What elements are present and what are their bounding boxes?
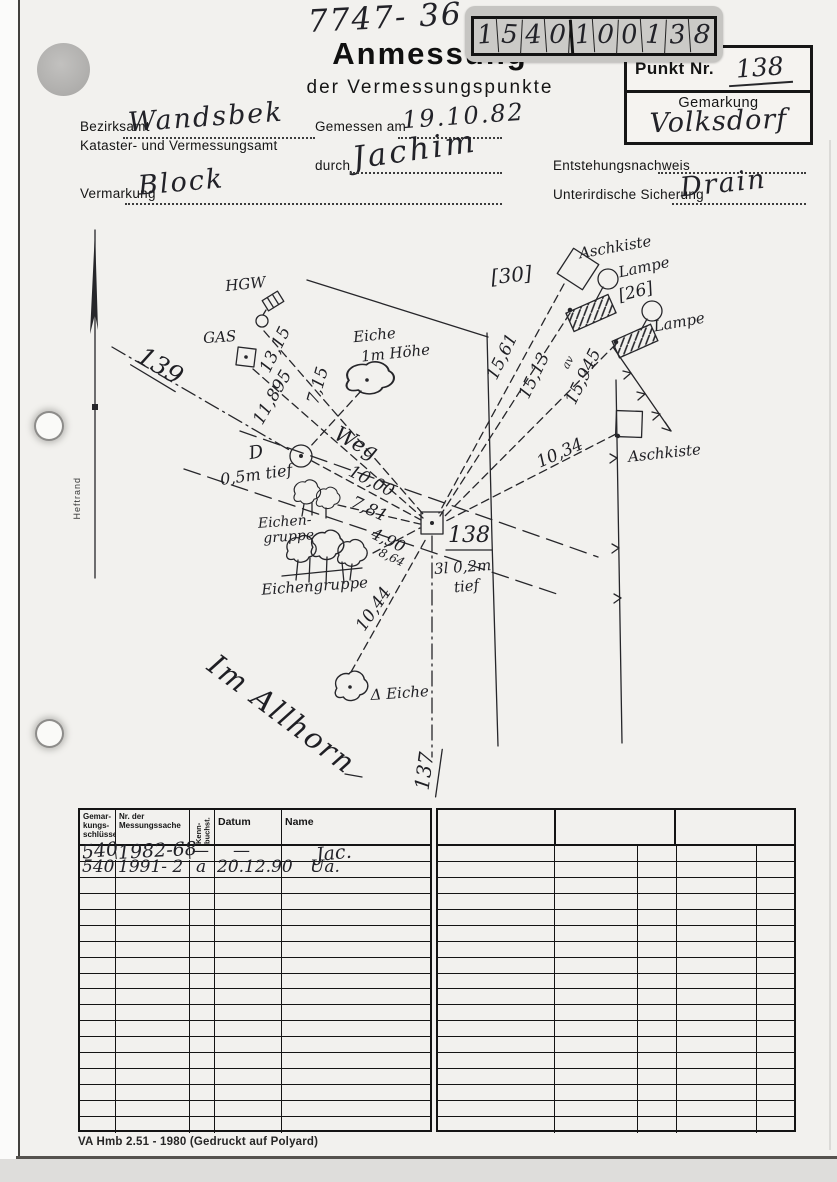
- table-row: [80, 1085, 430, 1101]
- table-row: [438, 862, 794, 878]
- table-row: [438, 926, 794, 942]
- digit-grid: 1 5 4 0 1 0 0 1 3 8: [471, 16, 717, 56]
- table-row: [80, 926, 430, 942]
- digit-cell: 0: [593, 18, 619, 53]
- table-row: [438, 1069, 794, 1085]
- header-datum: Datum: [215, 810, 282, 844]
- digit-cell: 8: [689, 18, 715, 53]
- table-row: [438, 1085, 794, 1101]
- table-row: [438, 1021, 794, 1037]
- table-row: [80, 894, 430, 910]
- table-row: [438, 878, 794, 894]
- table-row: [438, 942, 794, 958]
- punkt-nr-label: Punkt Nr.: [627, 59, 714, 79]
- table-row: [80, 989, 430, 1005]
- left-table-empty: [80, 878, 430, 1133]
- digit-cell: 5: [497, 18, 523, 53]
- table-row: [438, 1037, 794, 1053]
- table-row: [438, 989, 794, 1005]
- right-table-body: [438, 846, 794, 1133]
- table-row: [438, 846, 794, 862]
- heftrand-label: Heftrand: [72, 477, 82, 520]
- table-row: [438, 974, 794, 990]
- gemarkung-box: Gemarkung Volksdorf: [627, 90, 810, 142]
- table-row: [438, 1005, 794, 1021]
- kataster-label: Kataster- und Vermessungsamt: [80, 138, 278, 153]
- digit-cell: 0: [617, 18, 643, 54]
- page-right-edge: [829, 140, 831, 1150]
- digit-cell: 0: [545, 18, 571, 53]
- entstehungsnachweis-label: Entstehungsnachweis: [553, 158, 690, 173]
- digit-cell: 3: [665, 18, 691, 54]
- table-row: [80, 910, 430, 926]
- table-row: [438, 910, 794, 926]
- digit-cell: 1: [641, 18, 667, 53]
- table-row-filled: 540 1991- 2 a 20.12.90 Ua.: [80, 862, 430, 878]
- punch-hole: [37, 721, 62, 746]
- point-id-sticker: 1 5 4 0 1 0 0 1 3 8: [465, 6, 723, 62]
- table-row: [80, 1021, 430, 1037]
- vermarkung-line: [125, 203, 502, 205]
- table-row: [80, 1053, 430, 1069]
- page-left-edge: [18, 0, 20, 1157]
- table-row: [438, 894, 794, 910]
- punch-hole: [36, 413, 62, 439]
- table-row: [80, 1101, 430, 1117]
- punkt-nr-value: 138: [727, 51, 793, 87]
- durch-line: [350, 172, 502, 174]
- scan-background: [0, 1159, 837, 1182]
- durch-label: durch: [315, 158, 350, 173]
- table-row: [80, 974, 430, 990]
- table-row: [438, 1117, 794, 1133]
- table-row: [438, 1101, 794, 1117]
- table-row: [438, 958, 794, 974]
- table-row: [438, 1053, 794, 1069]
- revision-table: Gemar- kungs- schlüssel Nr. der Messungs…: [78, 808, 432, 1132]
- table-row: [80, 1037, 430, 1053]
- empty-table-header: [438, 810, 794, 846]
- gemessen-am-label: Gemessen am: [315, 119, 406, 134]
- table-row: [80, 878, 430, 894]
- table-row: [80, 1069, 430, 1085]
- table-row: [80, 958, 430, 974]
- digit-cell: 1: [473, 18, 499, 54]
- empty-table: [436, 808, 796, 1132]
- table-row: [80, 1005, 430, 1021]
- digit-cell: 4: [521, 18, 547, 54]
- gemarkung-value: Volksdorf: [627, 103, 811, 140]
- digit-cell: 1: [569, 18, 595, 54]
- form-subtitle: der Vermessungspunkte: [290, 77, 570, 99]
- table-row: [80, 1117, 430, 1133]
- table-row: [80, 942, 430, 958]
- form-footer: VA Hmb 2.51 - 1980 (Gedruckt auf Polyard…: [78, 1136, 318, 1148]
- sicherung-line: [672, 203, 806, 205]
- gray-seal-circle: [37, 43, 90, 96]
